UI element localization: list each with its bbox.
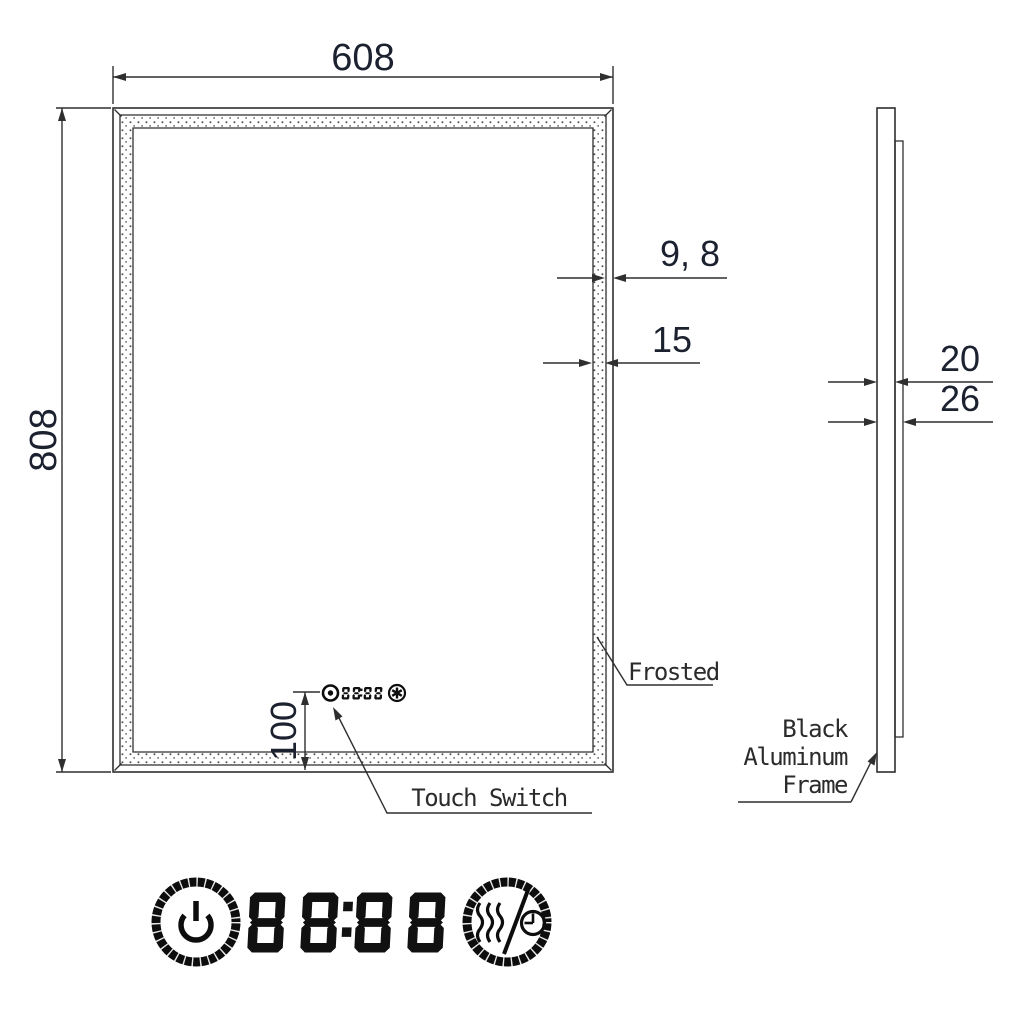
fan-defog-icon bbox=[389, 685, 405, 701]
steam-waves-icon bbox=[478, 903, 503, 942]
seven-segment-clock-display bbox=[247, 893, 446, 953]
defogger-timer-icon bbox=[467, 882, 547, 962]
width-dimension-label: 608 bbox=[331, 37, 394, 79]
mirror-technical-drawing: 608 808 9, 8 15 Frosted bbox=[0, 0, 1024, 1024]
total-thickness-dimension-label: 26 bbox=[940, 378, 980, 419]
dimension-total-thickness: 26 bbox=[828, 378, 993, 426]
frosted-callout: Frosted bbox=[597, 637, 719, 686]
power-icon bbox=[156, 882, 236, 962]
frame-label-line2: Aluminum bbox=[743, 743, 848, 771]
front-view bbox=[113, 108, 613, 772]
dimension-frosted-band: 15 bbox=[543, 319, 700, 367]
height-dimension-label: 808 bbox=[23, 408, 65, 471]
mirror-thickness-dimension-label: 20 bbox=[940, 338, 980, 379]
dimension-width: 608 bbox=[113, 37, 613, 104]
frosted-label: Frosted bbox=[628, 658, 719, 686]
control-icons bbox=[156, 882, 547, 962]
frosted-led-band bbox=[120, 115, 606, 765]
aluminum-frame-callout: Black Aluminum Frame bbox=[738, 715, 877, 802]
side-view-mirror-body bbox=[877, 108, 895, 772]
side-view: 20 26 Black Aluminum Frame bbox=[738, 108, 993, 802]
timer-clock-icon bbox=[522, 912, 545, 935]
side-view-back-panel bbox=[895, 141, 903, 737]
dimension-switch-offset: 100 bbox=[263, 692, 309, 770]
mini-touch-switch bbox=[293, 685, 405, 701]
corner-chamfers bbox=[115, 110, 612, 771]
switch-offset-dimension-label: 100 bbox=[263, 701, 304, 761]
dimension-height: 808 bbox=[23, 108, 111, 772]
dimension-frame-face: 9, 8 bbox=[557, 233, 727, 282]
mirror-outer-frame bbox=[113, 108, 613, 772]
slash-divider bbox=[504, 890, 528, 954]
power-icon bbox=[323, 686, 338, 701]
frame-label-line1: Black bbox=[782, 715, 849, 743]
seven-segment-clock-display bbox=[342, 687, 383, 700]
touch-switch-label: Touch Switch bbox=[411, 784, 566, 812]
frame-label-line3: Frame bbox=[782, 771, 848, 799]
frame-face-dimension-label: 9, 8 bbox=[660, 233, 720, 274]
frosted-band-dimension-label: 15 bbox=[652, 319, 692, 360]
technical-drawing-canvas: 608 808 9, 8 15 Frosted bbox=[0, 0, 1024, 1024]
